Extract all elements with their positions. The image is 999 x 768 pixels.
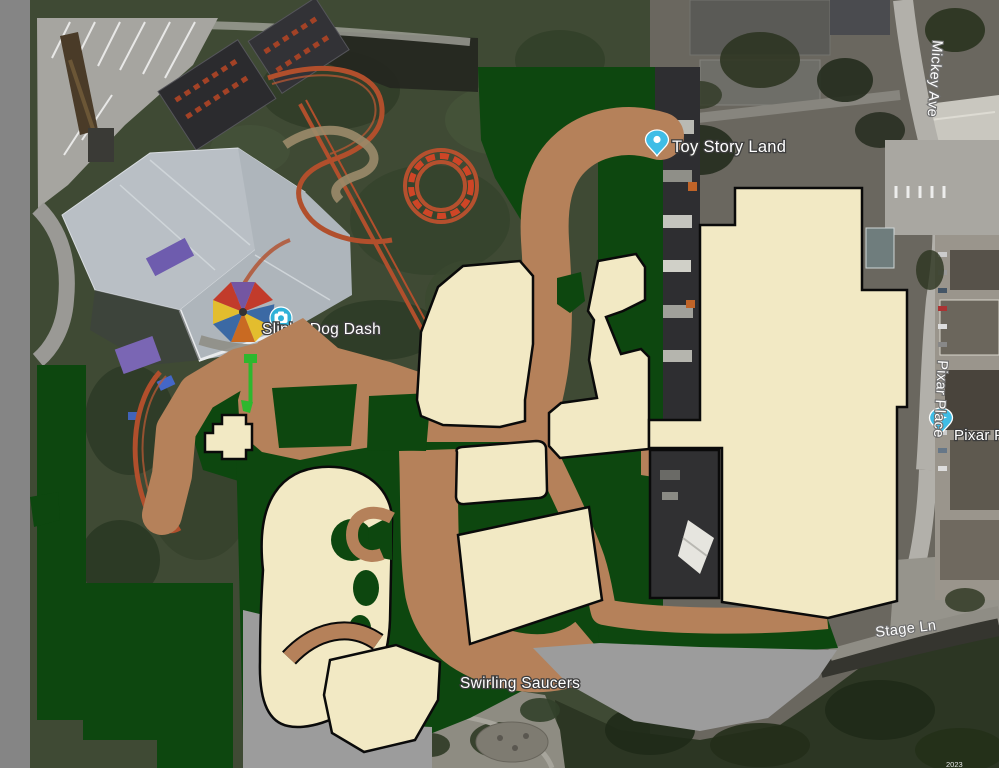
map-canvas[interactable]: Slinky Dog Dash [0, 0, 999, 768]
pixar-place-poi-label[interactable]: Pixar P [954, 427, 999, 444]
satellite-strip [650, 450, 719, 598]
annotated-satellite-map[interactable]: Slinky Dog Dash [0, 0, 999, 768]
swirling-saucers-label[interactable]: Swirling Saucers [460, 675, 580, 692]
saucers-platform [476, 722, 548, 762]
toy-story-land-label[interactable]: Toy Story Land [672, 138, 786, 156]
attribution-text: 2023 [946, 760, 963, 768]
